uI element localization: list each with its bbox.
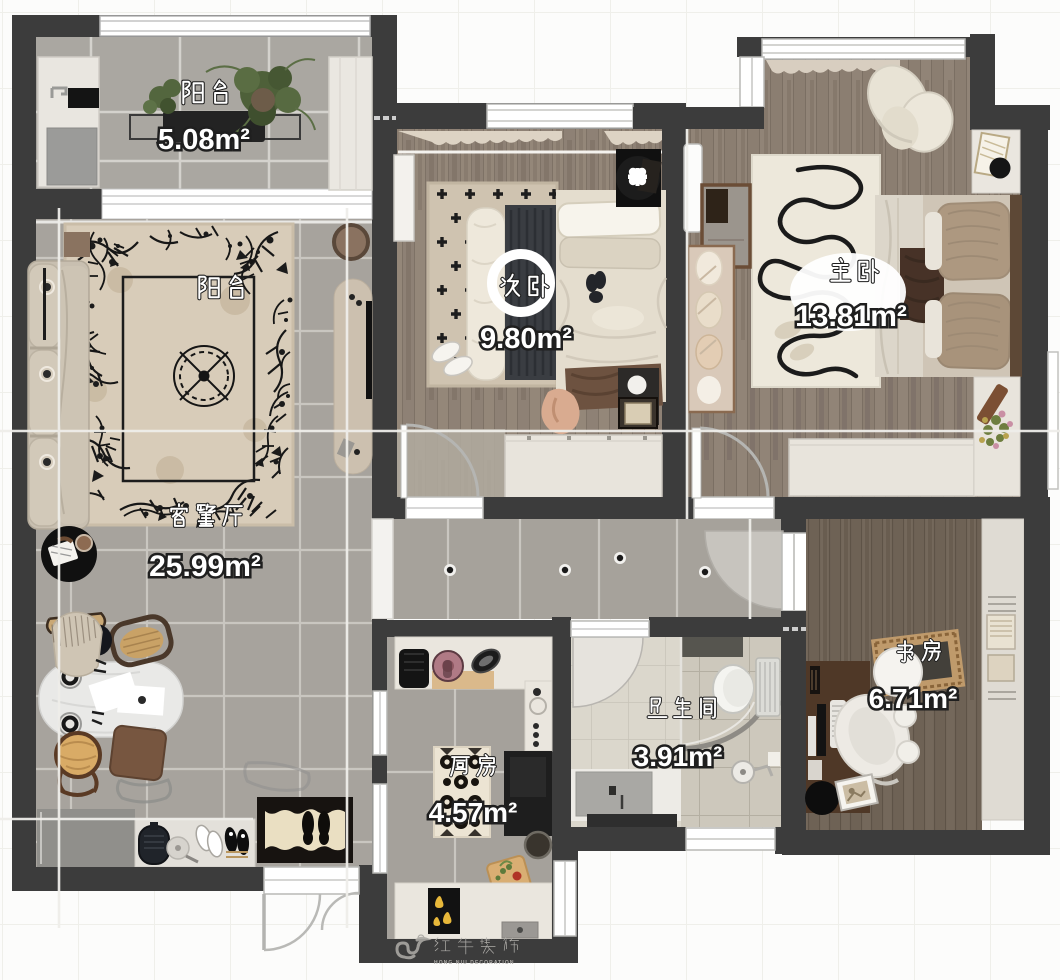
svg-text:4.57m²: 4.57m² [429, 797, 518, 828]
svg-text:25.99m²: 25.99m² [149, 550, 261, 583]
svg-text:6.71m²: 6.71m² [869, 683, 958, 714]
svg-text:5.08m²: 5.08m² [158, 124, 250, 156]
svg-text:3.91m²: 3.91m² [634, 741, 723, 772]
svg-text:9.80m²: 9.80m² [480, 323, 572, 355]
svg-text:HONG NIU DECORATION: HONG NIU DECORATION [434, 960, 515, 966]
svg-text:13.81m²: 13.81m² [795, 300, 907, 333]
